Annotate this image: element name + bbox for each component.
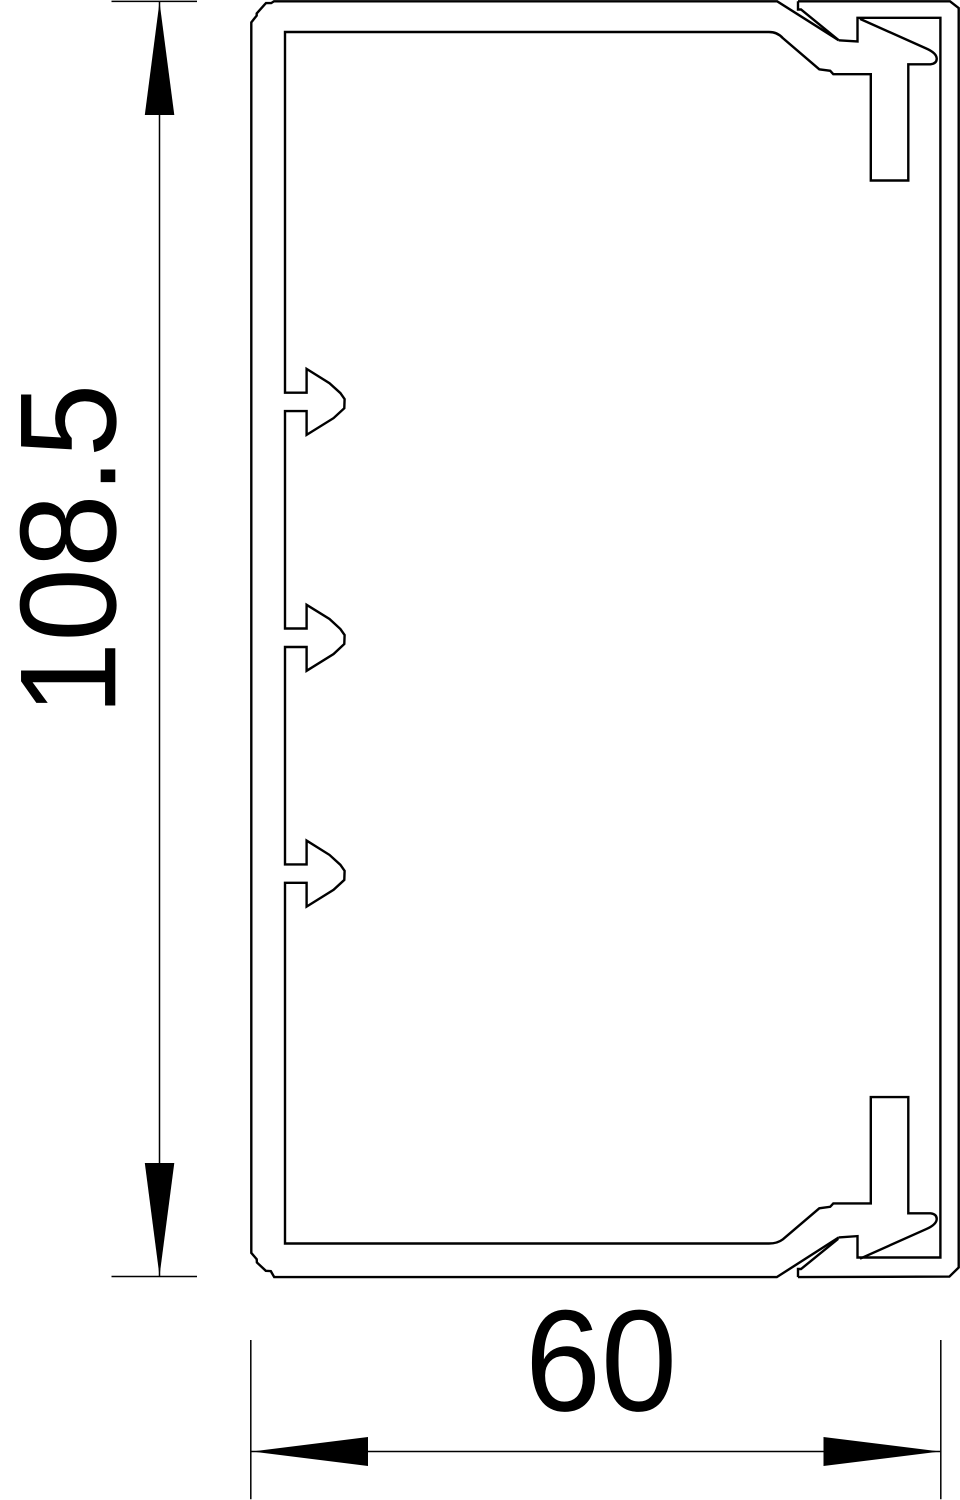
svg-text:60: 60: [525, 1280, 677, 1442]
svg-text:108.5: 108.5: [0, 384, 145, 716]
